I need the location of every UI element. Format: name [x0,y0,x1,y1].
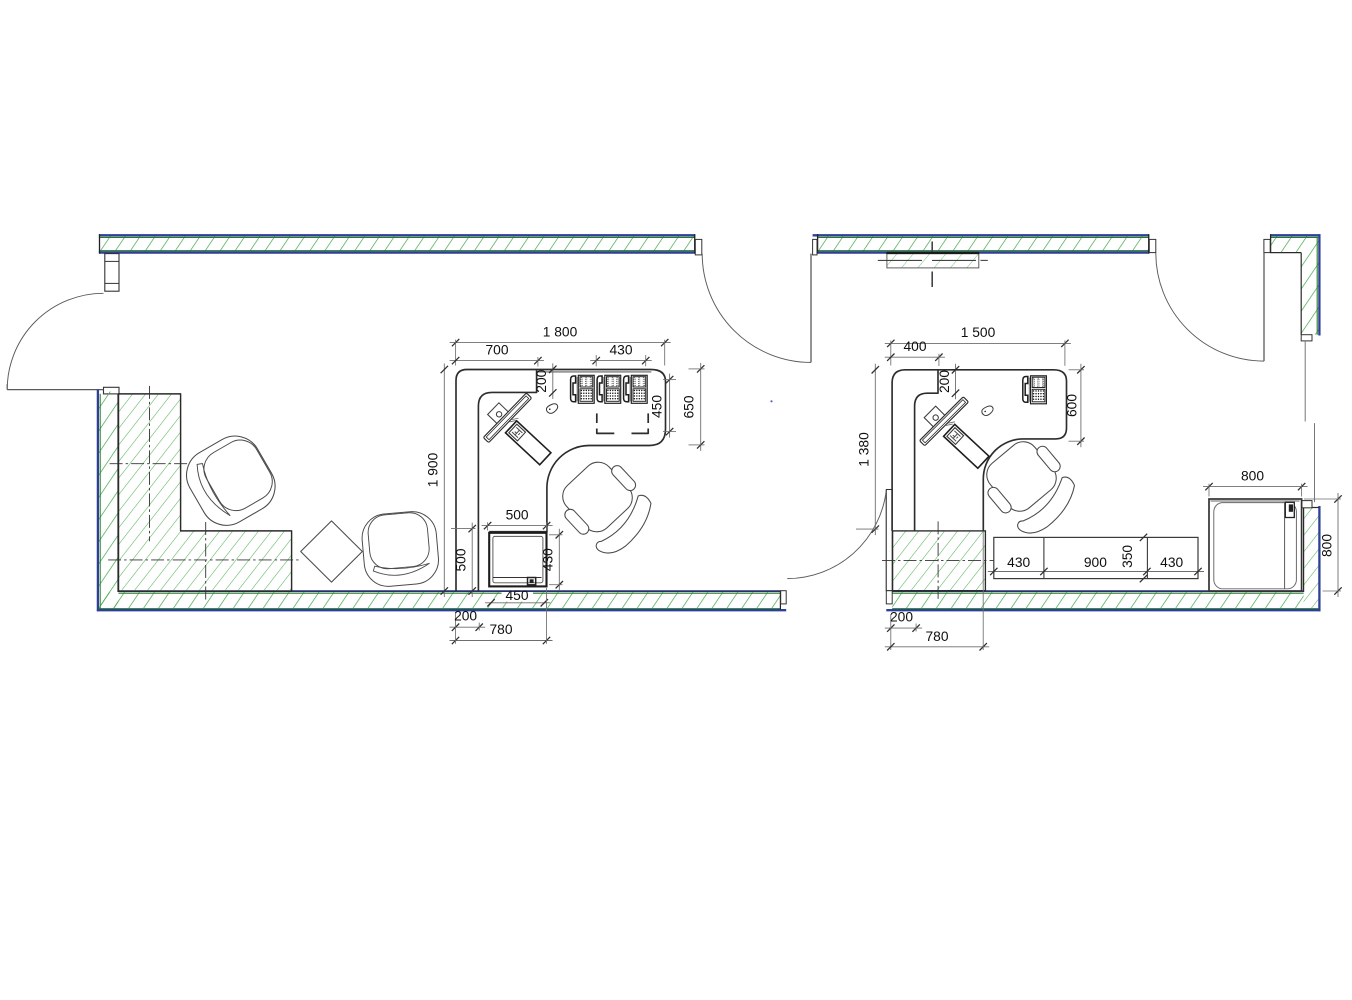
svg-text:450: 450 [505,588,528,603]
svg-text:650: 650 [681,395,696,418]
svg-text:200: 200 [937,370,952,393]
svg-text:500: 500 [506,507,529,522]
svg-text:780: 780 [489,622,512,637]
svg-text:430: 430 [1160,555,1183,570]
svg-text:800: 800 [1319,534,1334,557]
svg-text:800: 800 [1241,469,1264,484]
svg-text:400: 400 [903,339,926,354]
svg-text:700: 700 [485,343,508,358]
svg-text:500: 500 [453,548,468,571]
svg-text:600: 600 [1064,394,1079,417]
svg-text:200: 200 [890,609,913,624]
svg-text:450: 450 [650,395,665,418]
svg-text:1 900: 1 900 [425,452,440,487]
svg-text:350: 350 [1120,545,1135,568]
svg-text:430: 430 [1007,555,1030,570]
svg-text:1 500: 1 500 [961,325,996,340]
svg-text:200: 200 [454,608,477,623]
svg-text:200: 200 [534,369,549,392]
svg-text:1 800: 1 800 [543,324,578,339]
svg-text:1 380: 1 380 [856,432,871,467]
svg-text:430: 430 [540,548,555,571]
svg-text:780: 780 [925,629,948,644]
svg-text:430: 430 [609,343,632,358]
svg-text:900: 900 [1084,555,1107,570]
